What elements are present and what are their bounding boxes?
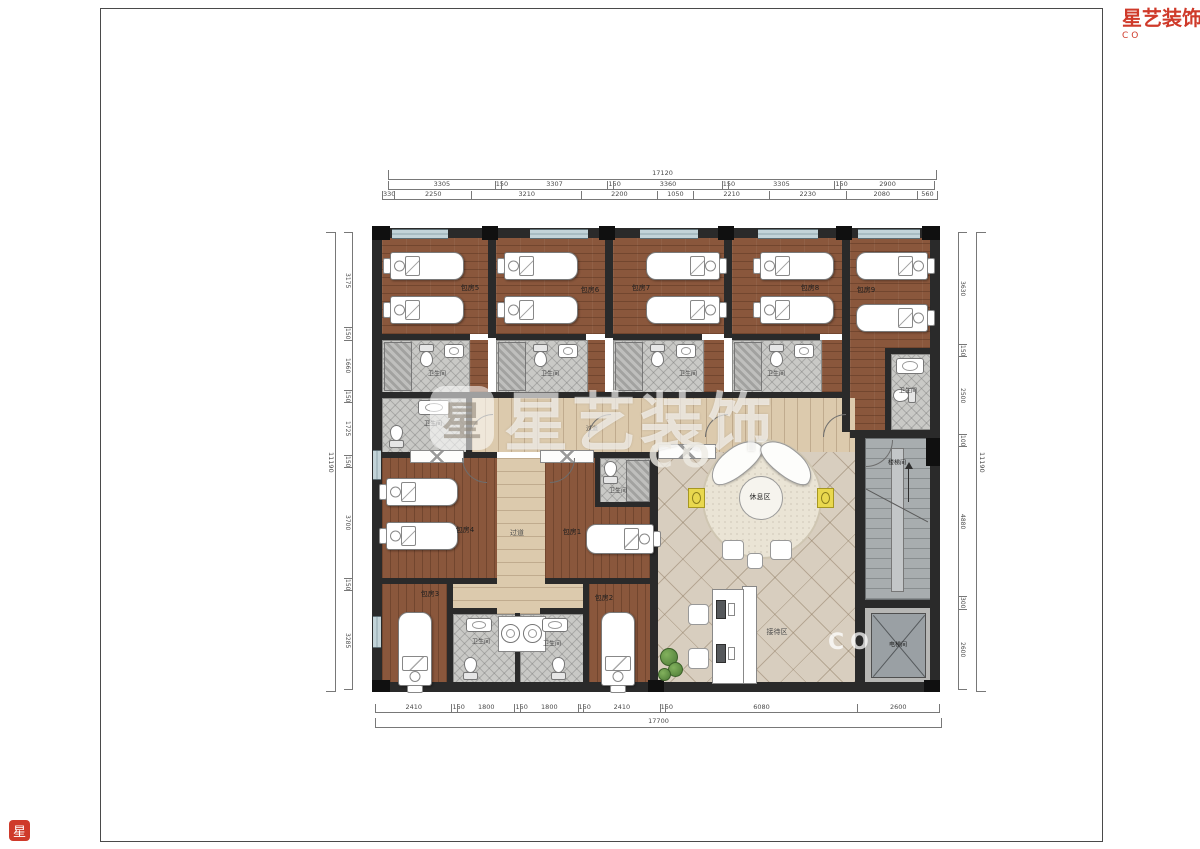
dimension-top-row2: 3302250321022001050221022302080560 bbox=[382, 191, 938, 200]
massage-bed bbox=[760, 252, 834, 280]
dimension-top-total: 17120 bbox=[388, 170, 937, 180]
column bbox=[372, 680, 390, 692]
bed-headrest bbox=[705, 261, 716, 272]
shower-icon bbox=[498, 342, 526, 391]
reception-stool bbox=[688, 648, 709, 669]
dimension-value: 330 bbox=[382, 191, 394, 200]
column bbox=[599, 226, 615, 240]
keyboard-icon bbox=[728, 603, 735, 616]
wall bbox=[724, 238, 732, 338]
wall bbox=[855, 438, 865, 682]
bed-stool bbox=[497, 258, 505, 274]
column bbox=[836, 226, 852, 240]
shower-icon bbox=[384, 342, 412, 391]
dimension-value: 100 bbox=[958, 434, 967, 446]
bed-towel bbox=[690, 300, 705, 320]
window bbox=[758, 229, 818, 239]
bed-headrest bbox=[639, 534, 650, 545]
dimension-value: 2210 bbox=[693, 191, 769, 200]
room4-label: 包房4 bbox=[456, 525, 474, 535]
massage-bed bbox=[601, 612, 635, 686]
brand-logo-bottom-left: 星 bbox=[9, 820, 30, 841]
bed-headrest bbox=[390, 487, 401, 498]
bed-towel bbox=[401, 526, 416, 546]
window bbox=[530, 229, 588, 239]
bed-headrest bbox=[508, 305, 519, 316]
dimension-value: 2500 bbox=[958, 356, 967, 433]
toilet-icon bbox=[604, 462, 618, 484]
bed-towel bbox=[405, 256, 420, 276]
bed-stool bbox=[379, 484, 387, 500]
dimension-value: 2080 bbox=[846, 191, 917, 200]
column bbox=[924, 680, 940, 692]
dimension-value: 3630 bbox=[958, 232, 967, 344]
dimension-value: 1725 bbox=[344, 402, 353, 454]
bed-towel bbox=[519, 300, 534, 320]
dimension-right-total: 11190 bbox=[976, 232, 986, 692]
bed-towel bbox=[605, 656, 631, 671]
door-niche bbox=[588, 340, 605, 392]
bed-stool bbox=[719, 258, 727, 274]
bed-towel bbox=[519, 256, 534, 276]
bed-stool bbox=[383, 258, 391, 274]
dimension-value: 150 bbox=[344, 578, 353, 590]
stair-direction-arrow bbox=[908, 468, 909, 502]
sink-icon bbox=[676, 344, 696, 358]
sink-icon bbox=[418, 400, 450, 415]
wall bbox=[613, 334, 702, 340]
column bbox=[718, 226, 734, 240]
room7-label: 包房7 bbox=[632, 283, 650, 293]
column bbox=[926, 438, 940, 466]
massage-bed bbox=[646, 296, 720, 324]
wall bbox=[466, 398, 472, 452]
room9-floor-strip bbox=[850, 348, 885, 432]
wall bbox=[885, 348, 891, 432]
shower-icon bbox=[734, 342, 762, 391]
corridor-label: 过道 bbox=[510, 528, 524, 538]
wall bbox=[452, 608, 497, 614]
bed-towel bbox=[775, 256, 790, 276]
dimension-value: 3305 bbox=[388, 181, 495, 190]
dimension-value: 1050 bbox=[657, 191, 694, 200]
dimension-value: 560 bbox=[917, 191, 938, 200]
dimension-value: 4880 bbox=[958, 446, 967, 596]
dimension-value: 1800 bbox=[457, 704, 514, 713]
side-table bbox=[817, 488, 834, 508]
keyboard-icon bbox=[728, 647, 735, 660]
dimension-value: 3360 bbox=[613, 181, 722, 190]
bed-headrest bbox=[613, 671, 624, 682]
dimension-value: 3305 bbox=[728, 181, 835, 190]
window bbox=[640, 229, 698, 239]
dimension-top-row1: 33051503307150336015033051502900 bbox=[388, 181, 935, 190]
bed-stool bbox=[379, 528, 387, 544]
toilet-icon bbox=[390, 426, 404, 448]
floor-grille bbox=[410, 450, 464, 463]
lounge-label: 休息区 bbox=[750, 492, 771, 502]
brand-letters: CO bbox=[1122, 31, 1200, 41]
bed-stool bbox=[753, 302, 761, 318]
wall bbox=[865, 600, 930, 608]
dimension-value: 2410 bbox=[375, 704, 451, 713]
toilet-icon bbox=[464, 658, 478, 680]
dimension-value: 150 bbox=[344, 327, 353, 339]
reception-label: 接待区 bbox=[767, 627, 788, 637]
column bbox=[482, 226, 498, 240]
room1-label: 包房1 bbox=[563, 527, 581, 537]
stool bbox=[747, 553, 763, 569]
bathroom-label: 卫生间 bbox=[472, 637, 490, 646]
bed-towel bbox=[624, 528, 639, 550]
bed-headrest bbox=[764, 261, 775, 272]
wall bbox=[382, 392, 842, 398]
dimension-left-row: 31751501660150172515037001503285 bbox=[344, 232, 353, 690]
wall bbox=[496, 334, 586, 340]
dimension-value: 1660 bbox=[344, 340, 353, 390]
bed-headrest bbox=[764, 305, 775, 316]
monitor-icon bbox=[716, 600, 726, 619]
sink-icon bbox=[466, 618, 492, 632]
bed-towel bbox=[898, 256, 913, 276]
bed-towel bbox=[402, 656, 428, 671]
wall bbox=[382, 334, 470, 340]
door-niche bbox=[470, 340, 488, 392]
sink-icon bbox=[896, 358, 924, 374]
floor-grille bbox=[658, 444, 716, 459]
side-table bbox=[688, 488, 705, 508]
dimension-value: 2600 bbox=[857, 704, 940, 713]
sink-icon bbox=[794, 344, 814, 358]
massage-bed bbox=[586, 524, 654, 554]
armchair bbox=[770, 540, 792, 560]
toilet-icon bbox=[769, 344, 783, 366]
bed-towel bbox=[775, 300, 790, 320]
wall bbox=[595, 458, 600, 507]
massage-bed bbox=[504, 252, 578, 280]
room3-label: 包房3 bbox=[421, 589, 439, 599]
massage-bed bbox=[856, 252, 928, 280]
bed-stool bbox=[927, 258, 935, 274]
bathroom-label: 卫生间 bbox=[541, 369, 559, 378]
sink-icon bbox=[542, 618, 568, 632]
room9-label: 包房9 bbox=[857, 285, 875, 295]
room2-label: 包房2 bbox=[595, 593, 613, 603]
massage-bed bbox=[386, 522, 458, 550]
dimension-value: 2250 bbox=[394, 191, 471, 200]
dimension-value: 2200 bbox=[581, 191, 657, 200]
door-niche bbox=[822, 340, 842, 392]
massage-bed bbox=[390, 252, 464, 280]
bathroom-label: 卫生间 bbox=[424, 419, 442, 428]
bed-headrest bbox=[508, 261, 519, 272]
window bbox=[373, 450, 381, 480]
reception-desk-back bbox=[742, 586, 757, 684]
wall bbox=[447, 583, 453, 682]
sink-icon bbox=[558, 344, 578, 358]
plant-icon bbox=[658, 668, 671, 681]
column bbox=[648, 680, 664, 692]
massage-bed bbox=[504, 296, 578, 324]
column bbox=[922, 226, 940, 240]
room6-label: 包房6 bbox=[581, 285, 599, 295]
bed-stool bbox=[753, 258, 761, 274]
wall bbox=[488, 238, 496, 338]
window bbox=[858, 229, 920, 239]
wall bbox=[595, 502, 652, 507]
window bbox=[373, 616, 381, 648]
bed-stool bbox=[719, 302, 727, 318]
dimension-value: 3210 bbox=[471, 191, 581, 200]
bed-towel bbox=[405, 300, 420, 320]
bed-towel bbox=[401, 482, 416, 502]
dimension-value: 2600 bbox=[958, 609, 967, 690]
dimension-right-row: 3630150250010048803002600 bbox=[958, 232, 967, 690]
massage-bed bbox=[856, 304, 928, 332]
door-niche bbox=[704, 340, 724, 392]
column bbox=[372, 226, 390, 240]
shower-icon bbox=[615, 342, 643, 391]
bathroom-label: 卫生间 bbox=[543, 639, 561, 648]
bed-headrest bbox=[410, 671, 421, 682]
dimension-value: 3307 bbox=[501, 181, 608, 190]
window bbox=[392, 229, 448, 239]
brand-mark-top-right: 星艺装饰 CO bbox=[1122, 2, 1200, 48]
corridor-label: 过道 bbox=[586, 424, 598, 433]
dimension-value: 2900 bbox=[840, 181, 935, 190]
wall bbox=[842, 238, 850, 432]
bed-headrest bbox=[394, 261, 405, 272]
toilet-icon bbox=[419, 344, 433, 366]
monitor-icon bbox=[716, 644, 726, 663]
dimension-value: 2410 bbox=[583, 704, 659, 713]
wall bbox=[605, 238, 613, 338]
stairwell-label: 楼梯间 bbox=[888, 458, 906, 467]
dimension-value: 11190 bbox=[326, 452, 335, 473]
round-sink-icon bbox=[523, 624, 542, 643]
bed-headrest bbox=[913, 313, 924, 324]
dimension-bottom-total: 17700 bbox=[375, 718, 942, 728]
dimension-value: 6080 bbox=[665, 704, 856, 713]
bed-stool bbox=[927, 310, 935, 326]
dimension-value: 3285 bbox=[344, 590, 353, 690]
bathroom-label: 卫生间 bbox=[767, 369, 785, 378]
round-sink-icon bbox=[501, 624, 520, 643]
reception-stool bbox=[688, 604, 709, 625]
elevator-label: 电梯间 bbox=[889, 640, 907, 649]
wall bbox=[850, 430, 940, 438]
bed-headrest bbox=[705, 305, 716, 316]
armchair bbox=[722, 540, 744, 560]
massage-bed bbox=[398, 612, 432, 686]
dimension-value: 150 bbox=[958, 344, 967, 356]
dimension-bottom-row: 241015018001501800150241015060802600 bbox=[375, 704, 940, 713]
wall bbox=[583, 583, 589, 682]
bed-towel bbox=[898, 308, 913, 328]
stair-stringer bbox=[891, 448, 904, 592]
wall bbox=[378, 578, 497, 584]
toilet-icon bbox=[650, 344, 664, 366]
bed-stool bbox=[383, 302, 391, 318]
toilet-icon bbox=[533, 344, 547, 366]
massage-bed bbox=[390, 296, 464, 324]
bed-stool bbox=[407, 685, 423, 693]
massage-bed bbox=[386, 478, 458, 506]
bed-stool bbox=[653, 531, 661, 547]
dimension-value: 3700 bbox=[344, 467, 353, 578]
toilet-icon bbox=[552, 658, 566, 680]
bed-headrest bbox=[394, 305, 405, 316]
dimension-left-total: 11190 bbox=[326, 232, 336, 692]
sink-icon bbox=[444, 344, 464, 358]
bathroom-label: 卫生间 bbox=[899, 386, 917, 395]
bed-stool bbox=[610, 685, 626, 693]
massage-bed bbox=[760, 296, 834, 324]
wall bbox=[650, 452, 658, 682]
brand-name: 星艺装饰 bbox=[1122, 2, 1200, 31]
wall bbox=[885, 348, 930, 354]
dimension-value: 150 bbox=[344, 455, 353, 467]
bathroom-label: 卫生间 bbox=[679, 369, 697, 378]
bed-headrest bbox=[913, 261, 924, 272]
dimension-value: 1800 bbox=[520, 704, 577, 713]
bed-headrest bbox=[390, 531, 401, 542]
dimension-value: 2230 bbox=[769, 191, 846, 200]
dimension-value: 17120 bbox=[652, 169, 673, 177]
dimension-value: 300 bbox=[958, 596, 967, 608]
bathroom-label: 卫生间 bbox=[609, 486, 627, 495]
shower-icon bbox=[626, 460, 650, 502]
wall bbox=[540, 608, 583, 614]
wall bbox=[732, 334, 820, 340]
bed-stool bbox=[497, 302, 505, 318]
room8-label: 包房8 bbox=[801, 283, 819, 293]
room5-label: 包房5 bbox=[461, 283, 479, 293]
massage-bed bbox=[646, 252, 720, 280]
dimension-value: 3175 bbox=[344, 232, 353, 327]
dimension-value: 11190 bbox=[977, 452, 986, 473]
bathroom-label: 卫生间 bbox=[428, 369, 446, 378]
dimension-value: 17700 bbox=[648, 717, 669, 725]
dimension-value: 150 bbox=[344, 390, 353, 402]
bed-towel bbox=[690, 256, 705, 276]
wall bbox=[545, 578, 655, 584]
